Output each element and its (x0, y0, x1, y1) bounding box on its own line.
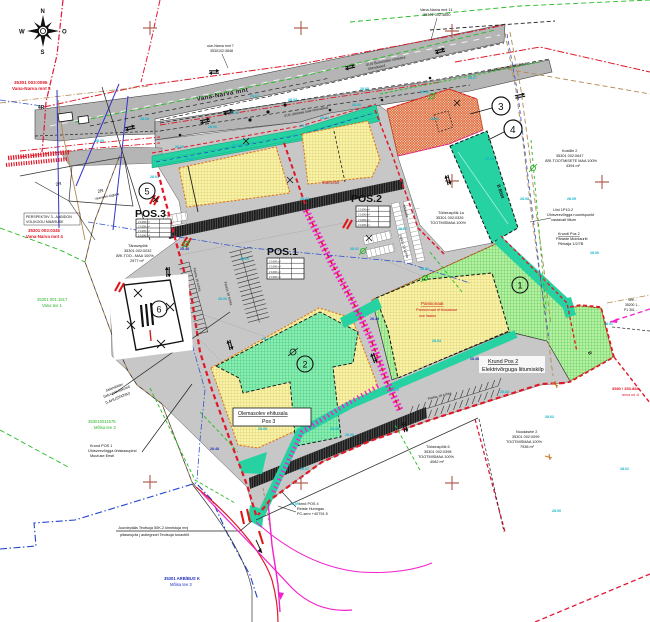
svg-text:Pansionaat ehitusaluse: Pansionaat ehitusaluse (416, 307, 458, 312)
svg-text:Vana tee 1: Vana tee 1 (42, 303, 63, 308)
svg-text:28.05: 28.05 (390, 388, 399, 392)
svg-text:Olemasolev ehitusala: Olemasolev ehitusala (238, 411, 288, 417)
svg-text:28.05: 28.05 (352, 103, 361, 107)
svg-text:Krundi Pos 2: Krundi Pos 2 (558, 232, 580, 236)
svg-text:Piirkalja 1/2/7B: Piirkalja 1/2/7B (558, 242, 584, 246)
svg-text:Ühisveevõrgga ühiskasupind: Ühisveevõrgga ühiskasupind (88, 449, 137, 453)
svg-text:une lisatee: une lisatee (419, 314, 436, 318)
svg-text:krnd POS 4: krnd POS 4 (299, 502, 319, 506)
svg-text:Krund POS 1: Krund POS 1 (90, 444, 112, 448)
svg-text:vastavalt liitum: vastavalt liitum (551, 218, 576, 222)
svg-text:28.02: 28.02 (185, 157, 194, 161)
svg-text:4R: 4R (38, 105, 45, 111)
svg-text:POS.1: POS.1 (267, 246, 298, 258)
svg-text:2 1606 m²: 2 1606 m² (358, 218, 370, 222)
svg-text:7938 m²: 7938 m² (520, 445, 535, 449)
svg-text:28.01: 28.01 (604, 322, 613, 326)
svg-text:65Ø1850: 65Ø1850 (322, 180, 340, 185)
svg-text:35301 002:0099: 35301 002:0099 (512, 435, 539, 439)
svg-text:35301 ARB/BUS K: 35301 ARB/BUS K (164, 576, 200, 581)
svg-text:Vana-Narva mnt 5: Vana-Narva mnt 5 (12, 86, 51, 91)
svg-text:28.09: 28.09 (290, 502, 299, 506)
svg-text:35301 003:0095: 35301 003:0095 (14, 80, 48, 85)
svg-text:W: W (19, 30, 25, 36)
svg-text:28.08: 28.08 (258, 427, 267, 431)
svg-text:28.08: 28.08 (140, 117, 149, 121)
svg-text:uue-Narva mnt 7: uue-Narva mnt 7 (207, 44, 234, 48)
svg-text:2 1606 m²: 2 1606 m² (269, 275, 281, 279)
svg-text:28.09: 28.09 (218, 297, 227, 301)
svg-text:Pos 3: Pos 3 (262, 419, 275, 425)
svg-text:28.01: 28.01 (620, 467, 629, 471)
svg-text:28.08: 28.08 (330, 427, 339, 431)
svg-text:28.05: 28.05 (360, 87, 369, 91)
svg-text:2 1606 m²: 2 1606 m² (269, 265, 281, 269)
svg-text:VOLIKOGU MÄÄRUSE: VOLIKOGU MÄÄRUSE (26, 220, 64, 224)
svg-text:28.01: 28.01 (150, 175, 159, 179)
svg-text:ÄRI-TOOTMISETE MAA 100%: ÄRI-TOOTMISETE MAA 100% (545, 159, 598, 163)
svg-text:Vee...: Vee... (628, 298, 637, 302)
svg-text:35301 002:0326: 35301 002:0326 (436, 216, 463, 220)
svg-text:1: 1 (518, 281, 523, 291)
svg-text:28.04: 28.04 (262, 337, 271, 341)
svg-text:Kostilin 2: Kostilin 2 (562, 149, 577, 153)
svg-text:N: N (41, 9, 45, 15)
svg-text:Mõisa tee 3: Mõisa tee 3 (170, 582, 192, 587)
svg-text:35301 002:0032: 35301 002:0032 (124, 249, 151, 253)
svg-text:5: 5 (145, 187, 150, 197)
svg-text:PERSPEKTIIV 3 - AABIDON: PERSPEKTIIV 3 - AABIDON (26, 215, 72, 219)
svg-text:35301 003:0345: 35301 003:0345 (28, 228, 61, 233)
svg-text:anna od -6: anna od -6 (622, 393, 639, 397)
svg-text:28.48: 28.48 (370, 317, 379, 321)
svg-text:Ühisveevõrgga ruumispunkt: Ühisveevõrgga ruumispunkt (547, 213, 595, 217)
svg-text:28.06: 28.06 (420, 90, 429, 94)
svg-text:28.48: 28.48 (210, 447, 219, 451)
svg-text:2 1606 m²: 2 1606 m² (138, 233, 150, 237)
svg-text:28.00: 28.00 (552, 509, 561, 513)
svg-text:35301 002:0398: 35301 002:0398 (424, 450, 451, 454)
svg-text:28.03: 28.03 (288, 98, 297, 102)
svg-text:4394 m²: 4394 m² (566, 164, 581, 168)
svg-text:35301 002:0647: 35301 002:0647 (556, 154, 583, 158)
svg-text:2 1606 m²: 2 1606 m² (358, 213, 370, 217)
svg-text:ÄRI-TOO...MAA 100%: ÄRI-TOO...MAA 100% (116, 254, 154, 258)
svg-text:2 1606 m²: 2 1606 m² (138, 224, 150, 228)
svg-text:28.06: 28.06 (345, 433, 354, 437)
svg-text:Muutuse Eesti: Muutuse Eesti (90, 454, 114, 458)
svg-text:2 1606 m²: 2 1606 m² (269, 260, 281, 264)
svg-text:35301 001:1517: 35301 001:1517 (37, 297, 68, 302)
svg-text:Elektrivõrguga liitumiskilp: Elektrivõrguga liitumiskilp (482, 367, 544, 373)
svg-text:POS.3: POS.3 (135, 208, 166, 220)
svg-text:Krund Pos 2: Krund Pos 2 (488, 359, 518, 365)
svg-text:28.02: 28.02 (230, 111, 239, 115)
svg-text:28.07: 28.07 (300, 467, 309, 471)
svg-text:Reiste Hunngas: Reiste Hunngas (297, 507, 324, 511)
svg-text:28.03: 28.03 (232, 143, 241, 147)
svg-text:28.00: 28.00 (590, 251, 599, 255)
svg-text:POS.2: POS.2 (351, 193, 382, 205)
svg-text:2577 m²: 2577 m² (130, 259, 145, 263)
svg-text:28.04: 28.04 (300, 124, 309, 128)
svg-text:P1 301...: P1 301... (624, 308, 638, 312)
svg-text:O: O (62, 30, 67, 36)
svg-text:2: 2 (303, 360, 308, 370)
svg-text:Tänavapõik: Tänavapõik (128, 244, 148, 248)
svg-text:28.03: 28.03 (500, 390, 509, 394)
svg-text:28.06: 28.06 (208, 125, 217, 129)
svg-text:6: 6 (157, 305, 162, 315)
svg-text:28.03: 28.03 (300, 197, 309, 201)
svg-text:3530102:3848: 3530102:3848 (210, 49, 233, 53)
svg-text:28.09: 28.09 (567, 197, 576, 201)
svg-text:Tööstuspõik 1a: Tööstuspõik 1a (438, 211, 465, 215)
svg-text:28.48: 28.48 (470, 357, 479, 361)
svg-text:28.04: 28.04 (432, 339, 441, 343)
svg-text:28.07: 28.07 (250, 94, 259, 98)
svg-text:28.04: 28.04 (320, 116, 329, 120)
svg-text:S: S (41, 50, 45, 56)
svg-text:2 1606 m²: 2 1606 m² (138, 220, 150, 224)
svg-text:2 1606 m²: 2 1606 m² (358, 223, 370, 227)
svg-text:28.08: 28.08 (520, 197, 529, 201)
svg-text:28.00: 28.00 (95, 139, 104, 143)
svg-text:4082 m²: 4082 m² (430, 460, 445, 464)
svg-text:TOOTMISMAA 100%: TOOTMISMAA 100% (506, 440, 543, 444)
svg-text:TOOTMISMAA 100%: TOOTMISMAA 100% (430, 221, 467, 225)
svg-text:28.48: 28.48 (180, 247, 189, 251)
svg-text:4: 4 (510, 125, 516, 136)
svg-text:28.02: 28.02 (545, 415, 554, 419)
svg-text:Pansionaat: Pansionaat (421, 301, 444, 306)
svg-text:Vana-Narva mnt 11: Vana-Narva mnt 11 (420, 8, 452, 12)
svg-text:2 1606 m²: 2 1606 m² (358, 208, 370, 212)
svg-text:Päraste Muinlauriti: Päraste Muinlauriti (556, 237, 588, 241)
svg-text:2 1606 m²: 2 1606 m² (269, 270, 281, 274)
svg-text:Liini 1P10-2: Liini 1P10-2 (553, 208, 573, 212)
svg-text:28.01: 28.01 (350, 247, 359, 251)
svg-text:Juurdepääs Teotsoja 50K-2 kinn: Juurdepääs Teotsoja 50K-2 kinnistuja mnj (118, 526, 188, 530)
svg-text:pltaseujcta j autiegnoel Teots: pltaseujcta j autiegnoel Teotsoja tonavt… (120, 533, 190, 537)
svg-text:28.07: 28.07 (468, 76, 477, 80)
svg-text:28.07: 28.07 (398, 227, 407, 231)
svg-text:2 1606 m²: 2 1606 m² (138, 229, 150, 233)
svg-text:Vana-Narva mnt 4: Vana-Narva mnt 4 (26, 234, 63, 239)
svg-text:28.09: 28.09 (175, 145, 184, 149)
svg-text:Tööstuspõik 6: Tööstuspõik 6 (426, 445, 450, 449)
svg-text:353010011575: 353010011575 (88, 419, 116, 424)
svg-text:28.02: 28.02 (420, 267, 429, 271)
svg-text:Mõisa tee 3: Mõisa tee 3 (94, 425, 116, 430)
svg-text:3: 3 (498, 102, 504, 113)
svg-text:Noodasele 2: Noodasele 2 (516, 430, 537, 434)
svg-text:35301 002:3850: 35301 002:3850 (423, 13, 450, 17)
svg-text:3580 / 353.888: 3580 / 353.888 (612, 386, 639, 391)
svg-text:PC-serv +40791.5: PC-serv +40791.5 (297, 512, 328, 516)
svg-text:28.05: 28.05 (430, 117, 439, 121)
svg-text:28.06: 28.06 (485, 157, 494, 161)
svg-text:28.00: 28.00 (240, 257, 249, 261)
svg-text:TOOTMISMAA 100%: TOOTMISMAA 100% (418, 455, 455, 459)
svg-text:35200 1...: 35200 1... (625, 303, 640, 307)
